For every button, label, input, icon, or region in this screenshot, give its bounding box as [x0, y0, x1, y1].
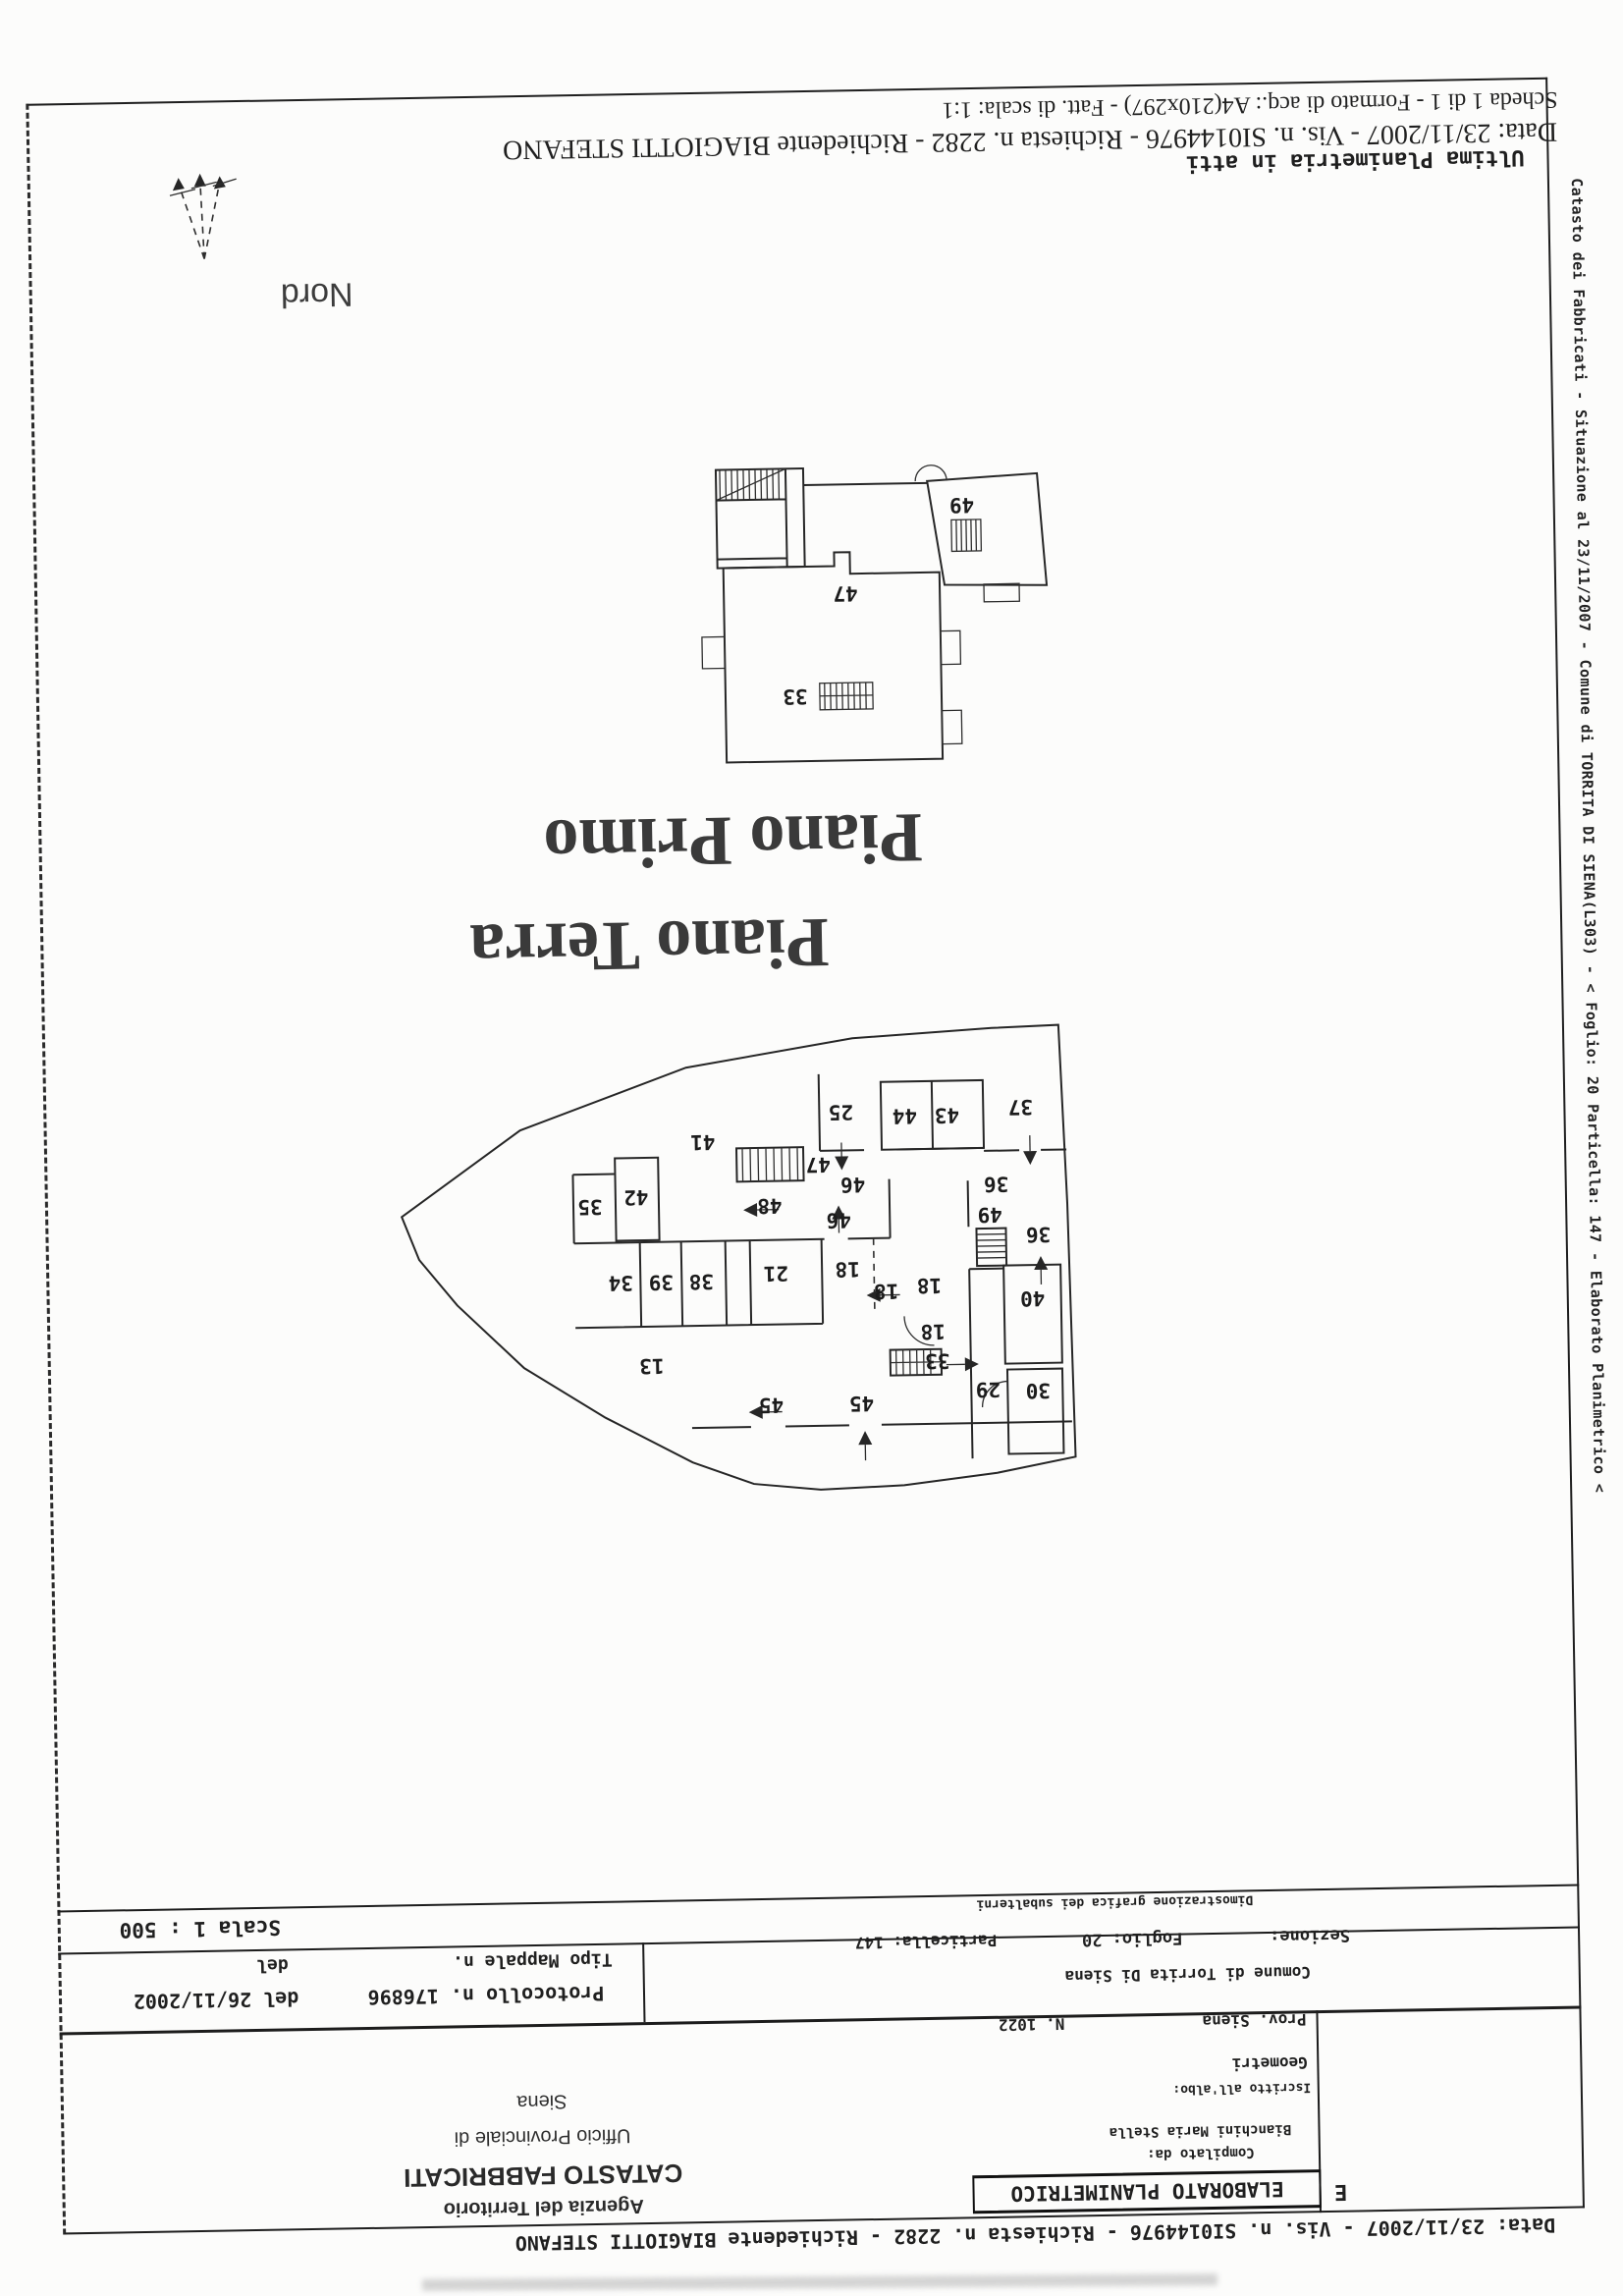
room-number: 47 [805, 1153, 831, 1176]
field-tipo-mappale: Tipo Mappale n. [434, 1948, 630, 1971]
room-number: 45 [759, 1394, 784, 1417]
floor-plan-piano-primo: 494733 [699, 464, 1050, 763]
room-number: 46 [840, 1173, 866, 1196]
room-number: 48 [757, 1194, 783, 1218]
room-number: 39 [649, 1270, 675, 1293]
room-number: 46 [826, 1208, 851, 1231]
field-particella: Particella: 147 [833, 1931, 1019, 1951]
field-compilato-da: Compilato da: [1112, 2144, 1289, 2162]
room-number: 49 [949, 493, 975, 517]
north-arrow-icon [170, 173, 239, 259]
room-number: 45 [849, 1392, 875, 1415]
room-number: 18 [874, 1279, 899, 1302]
room-number: 41 [690, 1130, 716, 1154]
logo-citta: Siena [444, 2089, 640, 2113]
room-number: 43 [935, 1103, 960, 1126]
logo-catasto-fabbricati: CATASTO FABBRICATI [386, 2159, 700, 2192]
room-number: 21 [763, 1261, 788, 1285]
field-foglio: Foglio: 20 [1063, 1928, 1201, 1948]
room-number: 35 [577, 1195, 603, 1219]
room-number: 40 [1020, 1286, 1046, 1310]
room-number: 29 [975, 1378, 1001, 1401]
elaborato-planimetrico-title: ELABORATO PLANIMETRICO [980, 2176, 1314, 2205]
room-number: 25 [829, 1100, 854, 1123]
field-scala: Scala 1 : 500 [97, 1915, 303, 1941]
room-number: 49 [977, 1203, 1002, 1227]
field-protocollo-del: del 26/11/2002 [93, 1988, 339, 2013]
field-prov: Prov. Siena [1180, 2010, 1327, 2030]
field-del: del [243, 1954, 301, 1975]
room-number: 34 [609, 1271, 634, 1294]
room-number: 42 [623, 1185, 649, 1209]
room-number: 37 [1007, 1095, 1033, 1119]
room-number: 30 [1025, 1379, 1051, 1402]
scan-skew-wrapper: Scheda 1 di 1 - Formato di acq.: A4(210x… [0, 0, 1623, 2296]
room-number: 18 [835, 1257, 860, 1281]
field-numero-albo: N. 1022 [972, 2014, 1090, 2034]
room-number: 18 [920, 1320, 946, 1343]
room-number: 36 [984, 1173, 1009, 1196]
room-number: 33 [783, 684, 808, 708]
field-protocollo: Protocollo n. 176896 [353, 1983, 619, 2009]
plan-drawings: 494733 [0, 0, 1623, 2296]
room-number: 47 [833, 581, 858, 605]
field-geometri: Geometri [1211, 2053, 1328, 2073]
scanned-document-page: Scheda 1 di 1 - Formato di acq.: A4(210x… [0, 0, 1623, 2296]
room-number: 44 [893, 1104, 918, 1127]
room-number: 13 [639, 1354, 665, 1378]
field-e-mark: E [1325, 2178, 1355, 2203]
room-number: 18 [917, 1274, 943, 1297]
floor-plan-piano-terra: 2544433741473542484646364936343938211818… [399, 1024, 1076, 1497]
room-number: 33 [925, 1349, 950, 1373]
field-sezione: Sezione: [1246, 1925, 1374, 1945]
room-number: 38 [689, 1270, 715, 1293]
room-number: 36 [1026, 1223, 1052, 1246]
